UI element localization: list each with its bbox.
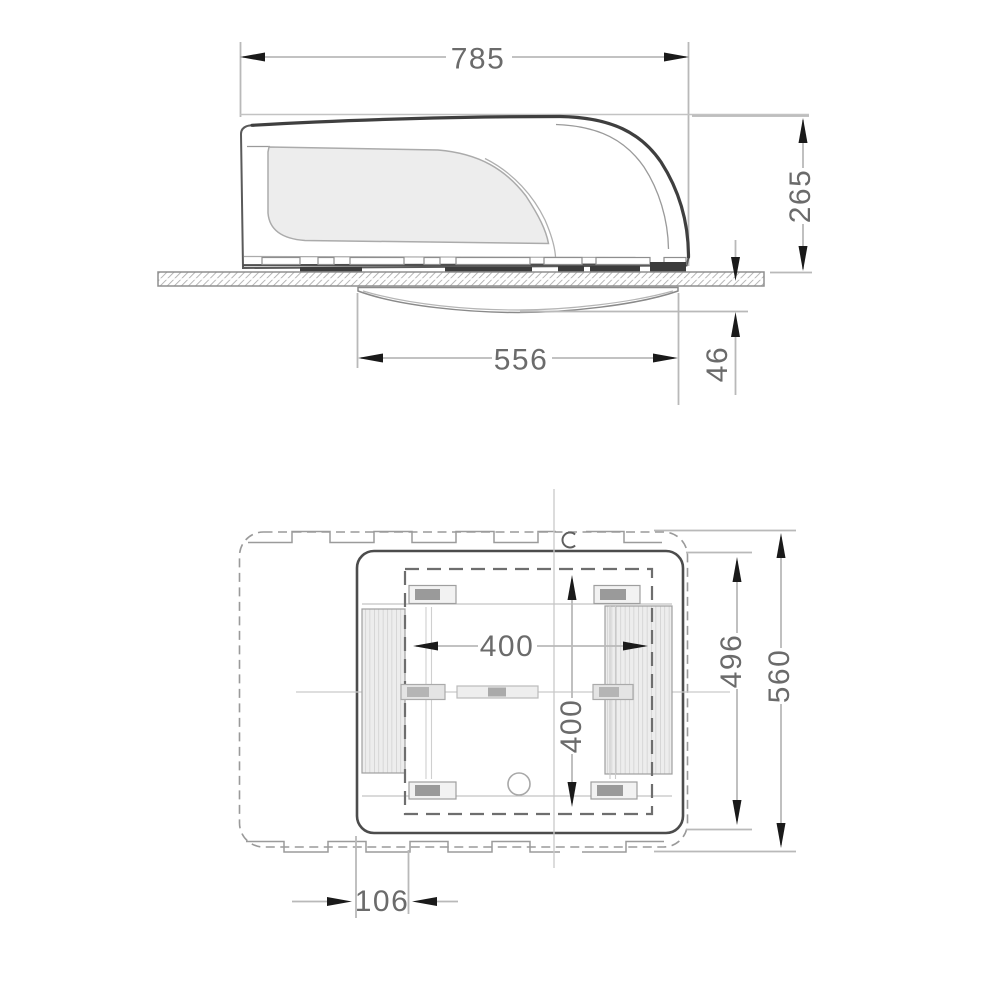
svg-text:106: 106: [355, 885, 410, 918]
svg-text:400: 400: [480, 630, 535, 663]
svg-text:556: 556: [494, 344, 549, 377]
svg-text:265: 265: [784, 169, 817, 224]
svg-text:496: 496: [715, 634, 748, 689]
svg-text:560: 560: [763, 649, 796, 704]
svg-text:785: 785: [451, 43, 506, 76]
svg-text:400: 400: [555, 699, 588, 754]
svg-text:46: 46: [701, 346, 734, 382]
